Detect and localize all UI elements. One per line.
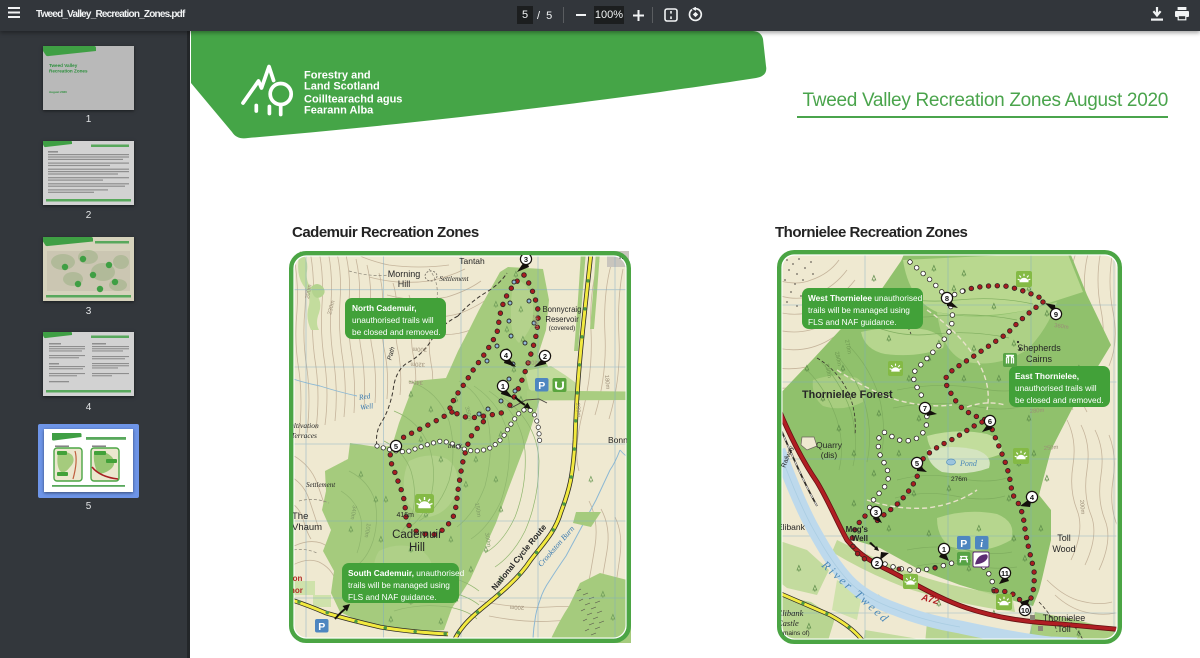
svg-text:Quarry: Quarry <box>816 440 843 450</box>
svg-text:200m: 200m <box>509 603 524 610</box>
svg-text:340m: 340m <box>408 378 423 385</box>
svg-text:Settlement: Settlement <box>306 481 336 489</box>
svg-text:5: 5 <box>394 442 398 451</box>
svg-text:The: The <box>292 511 308 522</box>
svg-text:i: i <box>980 539 983 550</box>
svg-text:track: track <box>448 443 463 450</box>
svg-text:2: 2 <box>543 352 547 361</box>
svg-text:P: P <box>318 621 325 633</box>
svg-text:FLS and NAF guidance.: FLS and NAF guidance. <box>348 592 437 602</box>
svg-text:Meg's: Meg's <box>846 525 869 534</box>
svg-text:1: 1 <box>942 545 946 554</box>
svg-text:Well: Well <box>852 534 868 543</box>
svg-text:300m: 300m <box>412 345 427 352</box>
svg-text:Thornielee: Thornielee <box>1043 613 1086 623</box>
svg-text:Well: Well <box>360 401 374 412</box>
svg-text:180m: 180m <box>603 375 610 390</box>
svg-text:East Thornielee,: East Thornielee, <box>1015 371 1079 381</box>
svg-text:Recreation Zones: Recreation Zones <box>49 69 88 74</box>
svg-text:South Cademuir, unauthorised: South Cademuir, unauthorised <box>348 568 465 578</box>
svg-text:P: P <box>960 538 967 550</box>
svg-text:trails will be managed using: trails will be managed using <box>808 305 910 315</box>
svg-text:Tweed Valley: Tweed Valley <box>49 63 78 68</box>
svg-text:Tantah: Tantah <box>459 256 485 266</box>
svg-text:1: 1 <box>501 382 505 391</box>
svg-text:be closed and removed.: be closed and removed. <box>352 327 441 337</box>
svg-text:be closed and removed.: be closed and removed. <box>1015 395 1104 405</box>
svg-text:FLS and NAF guidance.: FLS and NAF guidance. <box>808 317 897 327</box>
svg-text:320m: 320m <box>410 360 425 367</box>
svg-text:3: 3 <box>524 255 528 264</box>
svg-text:unauthorised trails will: unauthorised trails will <box>1015 383 1097 393</box>
svg-text:West Thornielee unauthorised: West Thornielee unauthorised <box>808 293 923 303</box>
svg-text:200m: 200m <box>1078 500 1085 515</box>
svg-text:(dis): (dis) <box>821 450 838 460</box>
svg-text:200m: 200m <box>574 403 581 418</box>
svg-text:Fearann Alba: Fearann Alba <box>304 104 374 116</box>
svg-text:Settlement: Settlement <box>439 275 469 283</box>
svg-text:276m: 276m <box>951 476 967 483</box>
svg-text:Pond: Pond <box>959 459 978 468</box>
svg-text:Thornielee Forest: Thornielee Forest <box>802 389 893 401</box>
svg-text:(covered): (covered) <box>549 325 576 332</box>
svg-text:Vhaum: Vhaum <box>292 522 322 533</box>
svg-text:416m: 416m <box>396 512 414 519</box>
svg-text:P: P <box>538 380 545 392</box>
svg-text:Reservoir: Reservoir <box>545 315 579 324</box>
svg-text:unauthorised trails will: unauthorised trails will <box>352 315 434 325</box>
svg-text:Land Scotland: Land Scotland <box>304 81 380 93</box>
svg-text:9: 9 <box>1054 310 1058 319</box>
svg-text:280m: 280m <box>1030 408 1045 415</box>
svg-text:5: 5 <box>915 459 919 468</box>
svg-text:10: 10 <box>1021 606 1029 615</box>
svg-text:7: 7 <box>923 404 927 413</box>
svg-text:Morning: Morning <box>388 269 421 279</box>
svg-text:6: 6 <box>988 417 992 426</box>
svg-text:Cairns: Cairns <box>1026 354 1053 364</box>
svg-text:Hill: Hill <box>398 279 411 289</box>
svg-text:Cademuir: Cademuir <box>392 529 442 541</box>
svg-text:trails will be managed using: trails will be managed using <box>348 580 450 590</box>
svg-text:250m: 250m <box>1044 445 1059 452</box>
svg-text:Red: Red <box>357 391 371 402</box>
svg-text:Terraces: Terraces <box>291 431 317 440</box>
svg-text:Wood: Wood <box>1052 544 1075 554</box>
svg-text:August 2020: August 2020 <box>49 90 67 94</box>
svg-text:Hill: Hill <box>409 542 425 554</box>
svg-text:8: 8 <box>945 294 949 303</box>
svg-text:Toll: Toll <box>1057 624 1071 634</box>
svg-text:Toll: Toll <box>1057 533 1071 543</box>
svg-text:11: 11 <box>1001 569 1009 578</box>
svg-text:Cultivation: Cultivation <box>289 421 319 430</box>
svg-text:2: 2 <box>875 559 879 568</box>
svg-text:Shepherds: Shepherds <box>1017 343 1061 353</box>
svg-text:North Cademuir,: North Cademuir, <box>352 303 417 313</box>
svg-text:Elibank: Elibank <box>777 522 806 532</box>
svg-text:3: 3 <box>874 508 878 517</box>
svg-text:Bonnycraig: Bonnycraig <box>542 305 581 314</box>
